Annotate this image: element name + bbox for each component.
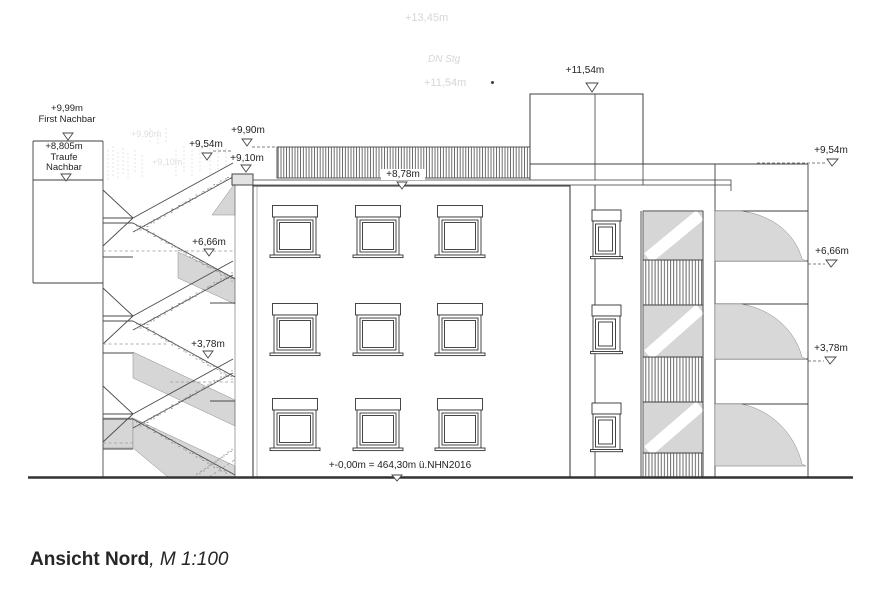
stair-gray-1 xyxy=(178,252,235,304)
neighbor-eaves-value: +8,805m xyxy=(33,142,95,153)
stair-gray-2 xyxy=(133,352,235,426)
staircase-section xyxy=(103,141,236,477)
parapet-end-block xyxy=(232,174,253,185)
label-right-666: +6,66m xyxy=(809,246,855,257)
label-stair-954: +9,54m xyxy=(183,139,229,150)
drawing-linework xyxy=(0,0,879,610)
label-neighbor-ridge: +9,99m First Nachbar xyxy=(34,104,100,125)
label-roofband-878: +8,78m xyxy=(381,169,425,180)
neighbor-ridge-value: +9,99m xyxy=(34,104,100,115)
stair-gray-top xyxy=(212,183,235,215)
marker-roof-990 xyxy=(242,139,252,146)
marker-tower-1154 xyxy=(586,83,598,92)
marker-parapet-910 xyxy=(241,165,251,172)
label-right-378: +3,78m xyxy=(808,343,854,354)
marker-stair-378 xyxy=(203,351,213,358)
roof-band xyxy=(232,147,731,191)
label-ground-level: +-0,00m = 464,30m ü.NHN2016 xyxy=(320,460,480,471)
neighbor-eaves-name2: Nachbar xyxy=(33,163,95,174)
label-neighbor-eaves: +8,805m Traufe Nachbar xyxy=(33,142,95,174)
balcony-gray-panels xyxy=(643,211,703,453)
marker-right-378 xyxy=(825,357,836,364)
elevation-drawing-sheet: +13,45m DN Stg +11,54m +9,90m +9,10m xyxy=(0,0,879,610)
bay-shading xyxy=(715,211,806,466)
sheet-title-name: Ansicht Nord xyxy=(30,549,149,570)
label-right-954: +9,54m xyxy=(807,145,855,156)
marker-stair-666 xyxy=(204,249,214,256)
right-section xyxy=(591,164,809,477)
neighbor-ridge-name: First Nachbar xyxy=(34,115,100,126)
marker-right-666 xyxy=(826,260,837,267)
parapet-strip xyxy=(253,180,731,185)
label-tower-1154: +11,54m xyxy=(556,65,614,76)
roof-tower xyxy=(530,94,643,185)
facade-windows xyxy=(270,206,485,451)
sheet-title: Ansicht Nord, M 1:100 xyxy=(30,549,229,571)
main-facade xyxy=(253,186,570,477)
marker-neighbor-ridge xyxy=(63,133,73,140)
label-stair-666: +6,66m xyxy=(188,237,230,248)
label-stair-378: +3,78m xyxy=(187,339,229,350)
marker-right-954 xyxy=(827,159,838,166)
stair-gray-landing xyxy=(103,418,133,448)
label-roof-990: +9,90m xyxy=(227,125,269,136)
label-parapet-910: +9,10m xyxy=(226,153,268,164)
sheet-title-scale: , M 1:100 xyxy=(149,549,228,570)
narrow-windows xyxy=(591,210,623,452)
